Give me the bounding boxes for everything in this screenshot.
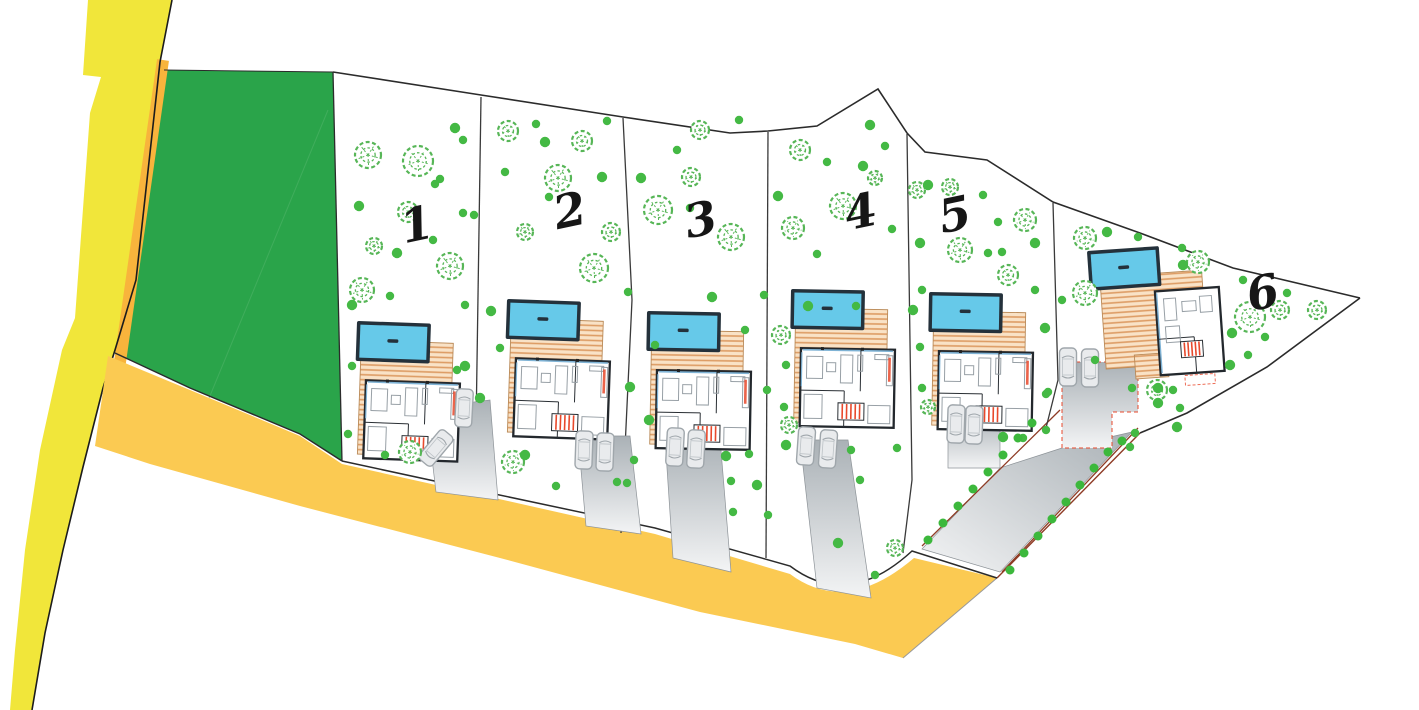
shrub-dot-icon — [998, 248, 1006, 256]
shrub-dot-icon — [1126, 443, 1134, 451]
tree-icon — [602, 223, 620, 241]
shrub-dot-icon — [486, 306, 496, 316]
shrub-dot-icon — [496, 344, 504, 352]
shrub-dot-icon — [763, 386, 771, 394]
tree-icon — [909, 182, 925, 198]
shrub-dot-icon — [630, 456, 638, 464]
bush-dot-icon — [1104, 448, 1113, 457]
shrub-dot-icon — [823, 158, 831, 166]
shrub-dot-icon — [918, 384, 926, 392]
shrub-dot-icon — [735, 116, 743, 124]
shrub-dot-icon — [1261, 333, 1269, 341]
bush-dot-icon — [999, 451, 1008, 460]
car-icon — [687, 430, 706, 469]
tree-icon — [1308, 301, 1326, 319]
car-icon — [596, 433, 614, 472]
shrub-dot-icon — [727, 477, 735, 485]
bush-dot-icon — [1062, 498, 1071, 507]
shrub-dot-icon — [984, 249, 992, 257]
shrub-dot-icon — [1091, 356, 1099, 364]
shrub-dot-icon — [624, 288, 632, 296]
bush-dot-icon — [939, 519, 948, 528]
shrub-dot-icon — [865, 120, 875, 130]
shrub-dot-icon — [741, 326, 749, 334]
shrub-dot-icon — [979, 191, 987, 199]
shrub-dot-icon — [436, 175, 444, 183]
shrub-dot-icon — [644, 415, 654, 425]
shrub-dot-icon — [1244, 351, 1252, 359]
tree-icon — [366, 238, 382, 254]
tree-icon — [517, 224, 533, 240]
tree-icon — [403, 146, 433, 176]
shrub-dot-icon — [833, 538, 843, 548]
tree-icon — [772, 326, 790, 344]
shrub-dot-icon — [856, 476, 864, 484]
bush-dot-icon — [1076, 481, 1085, 490]
tree-icon — [781, 417, 797, 433]
tree-icon — [350, 278, 374, 302]
bush-dot-icon — [1020, 549, 1029, 558]
shrub-dot-icon — [651, 341, 659, 349]
shrub-dot-icon — [1031, 286, 1039, 294]
shrub-dot-icon — [871, 571, 879, 579]
shrub-dot-icon — [764, 511, 772, 519]
shrub-dot-icon — [707, 292, 717, 302]
shrub-dot-icon — [1131, 429, 1139, 437]
shrub-dot-icon — [994, 218, 1002, 226]
shrub-dot-icon — [752, 480, 762, 490]
shrub-dot-icon — [475, 393, 485, 403]
car-icon — [666, 428, 685, 467]
shrub-dot-icon — [1030, 238, 1040, 248]
bush-dot-icon — [1006, 566, 1015, 575]
car-icon — [965, 406, 983, 445]
shrub-dot-icon — [1128, 384, 1136, 392]
shrub-dot-icon — [1042, 426, 1050, 434]
shrub-dot-icon — [354, 201, 364, 211]
shrub-dot-icon — [908, 305, 918, 315]
shrub-dot-icon — [1153, 398, 1163, 408]
bush-dot-icon — [1118, 437, 1127, 446]
shrub-dot-icon — [916, 343, 924, 351]
shrub-dot-icon — [745, 450, 753, 458]
shrub-dot-icon — [915, 238, 925, 248]
car-icon — [947, 405, 965, 444]
shrub-dot-icon — [347, 300, 357, 310]
shrub-dot-icon — [858, 161, 868, 171]
shrub-dot-icon — [893, 444, 901, 452]
shrub-dot-icon — [1134, 233, 1142, 241]
shrub-dot-icon — [603, 117, 611, 125]
bush-dot-icon — [984, 468, 993, 477]
shrub-dot-icon — [673, 146, 681, 154]
bush-dot-icon — [969, 485, 978, 494]
shrub-dot-icon — [923, 180, 933, 190]
shrub-dot-icon — [540, 137, 550, 147]
shrub-dot-icon — [470, 211, 478, 219]
shrub-dot-icon — [998, 432, 1008, 442]
shrub-dot-icon — [392, 248, 402, 258]
car-icon — [455, 389, 474, 428]
tree-icon — [1014, 209, 1036, 231]
shrub-dot-icon — [461, 301, 469, 309]
shrub-dot-icon — [781, 440, 791, 450]
tree-icon — [718, 224, 744, 250]
site-plan-drawing: 123456 — [0, 0, 1419, 710]
shrub-dot-icon — [729, 508, 737, 516]
bush-dot-icon — [1014, 434, 1023, 443]
tree-icon — [921, 400, 935, 414]
shrub-dot-icon — [782, 361, 790, 369]
shrub-dot-icon — [1178, 260, 1188, 270]
shrub-dot-icon — [803, 301, 813, 311]
tree-icon — [644, 196, 672, 224]
bush-dot-icon — [924, 536, 933, 545]
tree-icon — [682, 168, 700, 186]
tree-icon — [1074, 227, 1096, 249]
shrub-dot-icon — [501, 168, 509, 176]
shrub-dot-icon — [1283, 289, 1291, 297]
shrub-dot-icon — [780, 403, 788, 411]
shrub-dot-icon — [918, 286, 926, 294]
site-plan-page: 123456 — [0, 0, 1419, 710]
shrub-dot-icon — [847, 446, 855, 454]
shrub-dot-icon — [1172, 422, 1182, 432]
shrub-dot-icon — [773, 191, 783, 201]
tree-icon — [998, 265, 1018, 285]
shrub-dot-icon — [453, 366, 461, 374]
tree-icon — [399, 441, 421, 463]
tree-icon — [498, 121, 518, 141]
tree-icon — [782, 217, 804, 239]
shrub-dot-icon — [1042, 390, 1050, 398]
tree-icon — [790, 140, 810, 160]
shrub-dot-icon — [532, 120, 540, 128]
shrub-dot-icon — [888, 225, 896, 233]
tree-icon — [887, 540, 903, 556]
shrub-dot-icon — [459, 209, 467, 217]
shrub-dot-icon — [613, 478, 621, 486]
shrub-dot-icon — [520, 450, 530, 460]
shrub-dot-icon — [625, 382, 635, 392]
tree-icon — [437, 253, 463, 279]
shrub-dot-icon — [460, 361, 470, 371]
shrub-dot-icon — [381, 451, 389, 459]
shrub-dot-icon — [1176, 404, 1184, 412]
shrub-dot-icon — [386, 292, 394, 300]
shrub-dot-icon — [1058, 296, 1066, 304]
tree-icon — [580, 254, 608, 282]
shrub-dot-icon — [1225, 360, 1235, 370]
shrub-dot-icon — [881, 142, 889, 150]
shrub-dot-icon — [450, 123, 460, 133]
bush-dot-icon — [1090, 464, 1099, 473]
shrub-dot-icon — [348, 362, 356, 370]
shrub-dot-icon — [1153, 383, 1163, 393]
shrub-dot-icon — [1040, 323, 1050, 333]
shrub-dot-icon — [852, 302, 860, 310]
shrub-dot-icon — [1102, 227, 1112, 237]
shrub-dot-icon — [813, 250, 821, 258]
bush-dot-icon — [1028, 419, 1037, 428]
shrub-dot-icon — [1178, 244, 1186, 252]
shrub-dot-icon — [597, 172, 607, 182]
shrub-dot-icon — [552, 482, 560, 490]
shrub-dot-icon — [1227, 328, 1237, 338]
car-icon — [1060, 348, 1077, 386]
tree-icon — [1187, 251, 1209, 273]
shrub-dot-icon — [344, 430, 352, 438]
car-icon — [796, 426, 816, 465]
tree-icon — [572, 131, 592, 151]
villa-floorplan-icon — [645, 311, 752, 450]
car-icon — [1082, 349, 1099, 387]
tree-icon — [355, 142, 381, 168]
tree-icon — [691, 121, 709, 139]
shrub-dot-icon — [760, 291, 768, 299]
car-icon — [575, 431, 593, 470]
shrub-dot-icon — [636, 173, 646, 183]
car-icon — [818, 429, 838, 468]
bush-dot-icon — [1048, 515, 1057, 524]
bush-dot-icon — [1034, 532, 1043, 541]
bush-dot-icon — [954, 502, 963, 511]
shrub-dot-icon — [459, 136, 467, 144]
shrub-dot-icon — [623, 479, 631, 487]
tree-icon — [1073, 281, 1097, 305]
shrub-dot-icon — [721, 451, 731, 461]
shrub-dot-icon — [1169, 386, 1177, 394]
